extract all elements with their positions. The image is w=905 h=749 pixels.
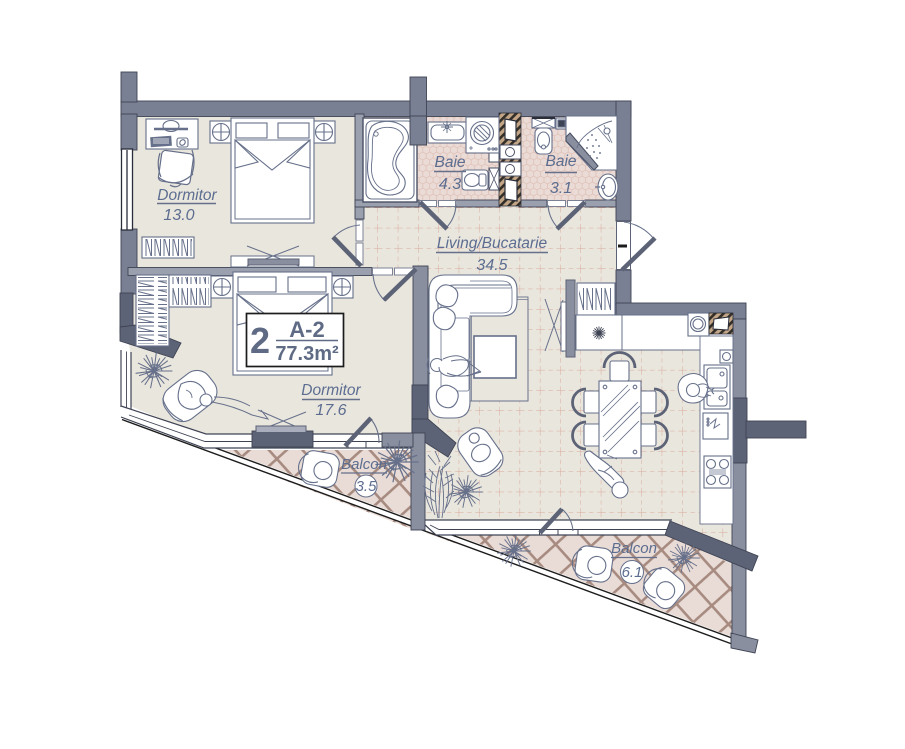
svg-text:Living/Bucatarie: Living/Bucatarie <box>437 235 548 252</box>
svg-text:77.3m²: 77.3m² <box>275 343 339 365</box>
svg-text:34.5: 34.5 <box>476 257 507 274</box>
svg-text:4.3: 4.3 <box>439 176 461 193</box>
svg-text:3.5: 3.5 <box>356 478 378 495</box>
svg-text:Balcon: Balcon <box>611 540 657 557</box>
svg-text:17.6: 17.6 <box>315 402 346 419</box>
svg-text:6.1: 6.1 <box>622 564 643 581</box>
svg-text:A-2: A-2 <box>289 317 324 342</box>
svg-text:13.0: 13.0 <box>163 207 194 224</box>
svg-text:Dormitor: Dormitor <box>157 187 217 204</box>
svg-text:Baie: Baie <box>545 153 576 170</box>
svg-text:Balcon: Balcon <box>341 456 387 473</box>
svg-text:Dormitor: Dormitor <box>301 382 361 399</box>
svg-text:Baie: Baie <box>434 154 465 171</box>
svg-text:2: 2 <box>250 320 270 361</box>
svg-text:3.1: 3.1 <box>550 180 572 197</box>
